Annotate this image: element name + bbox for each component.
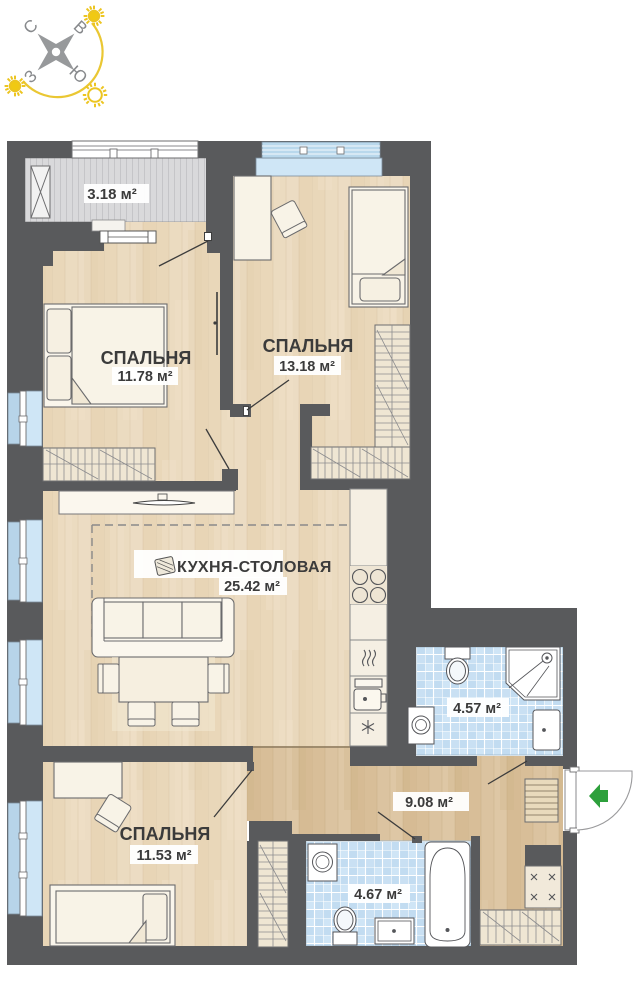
- svg-text:СПАЛЬНЯ: СПАЛЬНЯ: [101, 348, 192, 368]
- svg-text:3.18 м²: 3.18 м²: [87, 186, 136, 203]
- svg-text:25.42 м²: 25.42 м²: [224, 579, 280, 595]
- svg-text:11.53 м²: 11.53 м²: [136, 848, 191, 864]
- svg-text:13.18 м²: 13.18 м²: [279, 359, 335, 375]
- svg-text:4.67 м²: 4.67 м²: [354, 887, 402, 903]
- svg-text:СПАЛЬНЯ: СПАЛЬНЯ: [263, 336, 354, 356]
- svg-text:СПАЛЬНЯ: СПАЛЬНЯ: [120, 824, 211, 844]
- svg-text:11.78 м²: 11.78 м²: [117, 369, 172, 385]
- svg-text:КУХНЯ-СТОЛОВАЯ: КУХНЯ-СТОЛОВАЯ: [177, 559, 332, 576]
- svg-text:4.57 м²: 4.57 м²: [453, 701, 501, 717]
- svg-text:9.08 м²: 9.08 м²: [405, 795, 453, 811]
